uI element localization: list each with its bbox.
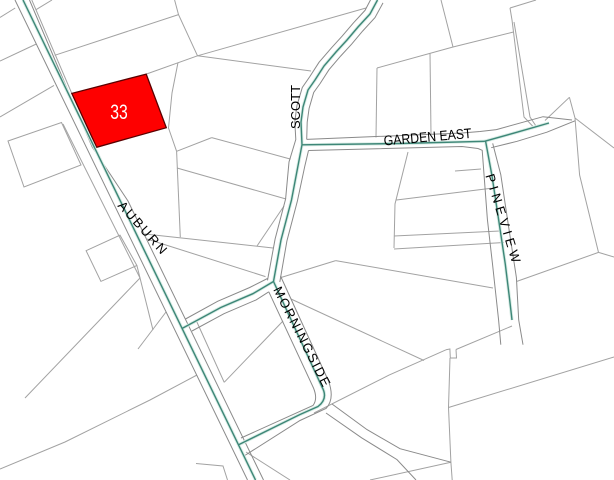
svg-text:33: 33: [110, 101, 128, 124]
svg-text:SCOTT: SCOTT: [288, 85, 303, 129]
